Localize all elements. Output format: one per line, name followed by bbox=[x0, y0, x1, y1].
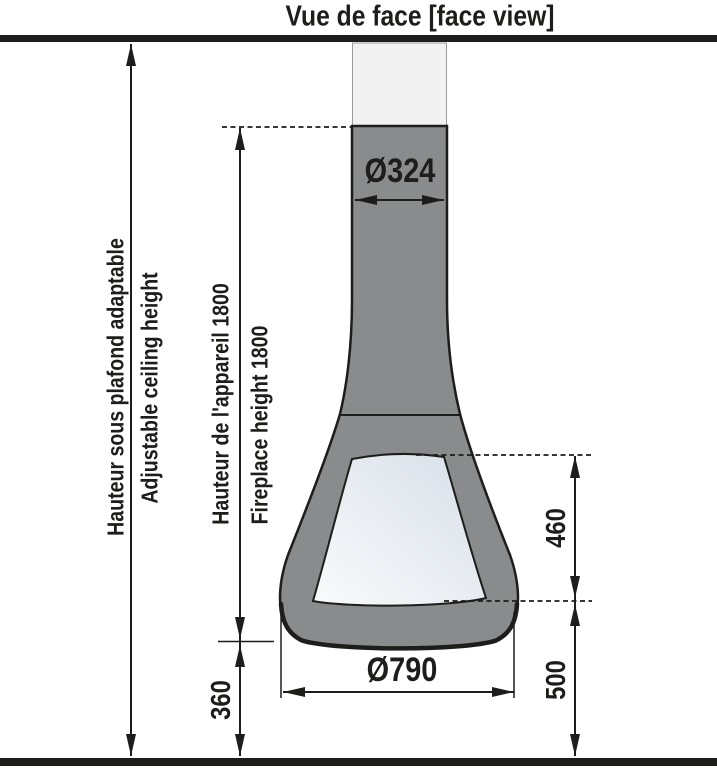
bottom-clearance-value: 360 bbox=[207, 680, 235, 720]
arrowhead-right-icon bbox=[492, 687, 514, 697]
arrowhead-down-icon bbox=[235, 617, 245, 639]
opening-height-value: 460 bbox=[542, 508, 570, 548]
arrowhead-down-icon bbox=[126, 734, 136, 756]
arrowhead-down-icon bbox=[570, 734, 580, 756]
arrowhead-up-icon bbox=[570, 604, 580, 626]
ceiling-height-label-en: Adjustable ceiling height bbox=[139, 272, 162, 503]
base-to-floor-value: 500 bbox=[542, 660, 570, 700]
flue-diameter-value: Ø324 bbox=[365, 154, 436, 188]
appliance-height-label-en: Fireplace height 1800 bbox=[249, 326, 272, 525]
face-view-diagram: Vue de face [face view] bbox=[0, 0, 717, 768]
telescopic-flue-section bbox=[353, 43, 447, 126]
arrowhead-down-icon bbox=[570, 576, 580, 598]
arrowhead-up-icon bbox=[570, 456, 580, 478]
ceiling-height-label-fr: Hauteur sous plafond adaptable bbox=[105, 238, 128, 536]
arrowhead-left-icon bbox=[283, 687, 305, 697]
arrowhead-down-icon bbox=[235, 734, 245, 756]
base-diameter-value: Ø790 bbox=[367, 653, 438, 687]
arrowhead-up-icon bbox=[235, 645, 245, 667]
appliance-height-label-fr: Hauteur de l'appareil 1800 bbox=[210, 283, 233, 525]
arrowhead-up-icon bbox=[126, 44, 136, 66]
arrowhead-up-icon bbox=[235, 128, 245, 150]
